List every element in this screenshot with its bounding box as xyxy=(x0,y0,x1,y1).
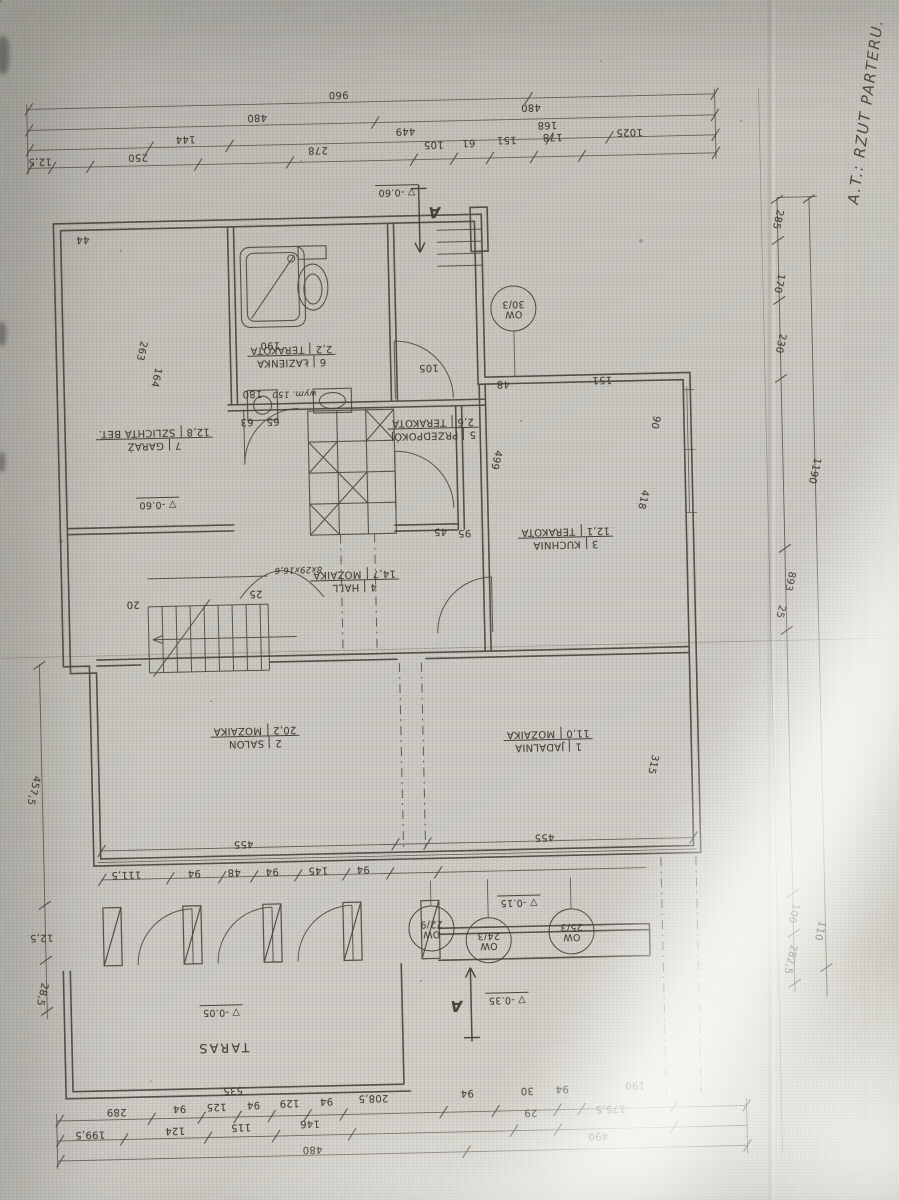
dim-label: 111,5 xyxy=(111,869,141,881)
dim-label: 20 xyxy=(126,599,140,610)
level-mark: ▽ -0.35 xyxy=(485,992,528,1006)
room-label: 6ŁAZIENKA2,2TERAKOTA xyxy=(247,342,336,369)
floorplan-photo: 96048048014444916812,5250278105611511781… xyxy=(0,0,899,1200)
window-mark: OW24/3 xyxy=(465,917,512,964)
dim-label: 94 xyxy=(247,1099,261,1110)
window-mark: OW30/3 xyxy=(490,285,537,332)
dim-label: 230 xyxy=(773,332,788,354)
dim-label: 45 xyxy=(434,526,448,537)
dim-label: 449 xyxy=(395,125,415,136)
dim-label: 105 xyxy=(424,139,444,150)
dim-label: 190 xyxy=(625,1079,645,1090)
dim-label: 100 xyxy=(786,902,801,924)
dim-label: 455 xyxy=(534,831,554,842)
dim-label: 61 xyxy=(462,137,476,148)
dim-label: 115 xyxy=(231,1121,251,1132)
plan-labels: 96048048014444916812,5250278105611511781… xyxy=(0,0,899,1200)
level-mark: ▽ -0.05 xyxy=(200,1004,243,1018)
dim-label: 175,5 xyxy=(595,1103,625,1115)
room-label: 5PRZEDPOKÓJ2,6TERAKOTA xyxy=(387,415,479,442)
dim-label: 164 xyxy=(148,367,163,389)
dim-label: 170 xyxy=(771,272,786,294)
room-label: 2SALON20,2MOZAIKA xyxy=(210,723,299,750)
dim-label: 144 xyxy=(175,133,195,144)
dim-label: 65 xyxy=(266,415,280,426)
dim-label: 168 xyxy=(537,119,557,130)
dim-label: 457,5 xyxy=(25,775,42,807)
dim-label: 893 xyxy=(782,570,797,592)
section-label: A xyxy=(428,203,440,221)
dim-label: 12,5 xyxy=(30,932,54,944)
dim-label: 285 xyxy=(770,208,785,230)
dim-label: 94 xyxy=(320,1095,334,1106)
dim-label: 151 xyxy=(496,134,516,145)
dim-label: 199,5 xyxy=(75,1128,105,1140)
dim-label: 63 xyxy=(240,416,254,427)
dim-label: 146 xyxy=(300,1118,320,1129)
dim-label: 95 xyxy=(458,527,472,538)
window-mark: OW25/3 xyxy=(548,908,595,955)
dim-label: 208,5 xyxy=(358,1092,388,1104)
room-label: 7GARAŻ12,8SZLICHTA BET. xyxy=(95,425,213,452)
paper-speckles xyxy=(0,0,2,2)
dim-label: 110 xyxy=(812,920,827,942)
window-mark: OW22/9 xyxy=(408,905,455,952)
dim-label: 263 xyxy=(134,340,149,362)
note-label: 8x29x16,6 xyxy=(274,564,322,575)
dim-label: 94 xyxy=(356,863,370,874)
room-label: 4HALL14,7MOZAIKA xyxy=(310,567,399,594)
dim-label: 48 xyxy=(496,378,510,389)
dim-label: 94 xyxy=(173,1103,187,1114)
dim-label: 94 xyxy=(187,867,201,878)
dim-label: 48 xyxy=(227,866,241,877)
dim-label: 499 xyxy=(488,449,503,471)
level-mark: ▽ -0.15 xyxy=(497,895,540,909)
dim-label: 180 xyxy=(242,388,262,399)
dim-label: 1025 xyxy=(616,126,643,138)
section-label: A xyxy=(450,997,462,1015)
plan-wrapper: 96048048014444916812,5250278105611511781… xyxy=(0,0,899,1200)
dim-label: 282,5 xyxy=(782,943,799,975)
dim-label: 125 xyxy=(206,1101,226,1112)
dim-label: 455 xyxy=(233,838,253,849)
dim-label: 151 xyxy=(592,374,612,385)
dim-label: 535 xyxy=(223,1084,243,1095)
dim-label: 480 xyxy=(247,112,267,123)
level-mark: ▽ -0.60 xyxy=(136,497,179,511)
dim-label: 44 xyxy=(76,234,90,245)
dim-label: 418 xyxy=(635,489,650,511)
dim-label: 178 xyxy=(542,131,562,142)
dim-label: 960 xyxy=(328,89,348,100)
dim-label: 124 xyxy=(165,1125,185,1136)
dim-label: 25 xyxy=(249,588,263,599)
dim-label: 94 xyxy=(555,1083,569,1094)
dim-label: 94 xyxy=(265,865,279,876)
dim-label: 129 xyxy=(279,1097,299,1108)
dim-label: 480 xyxy=(302,1144,322,1155)
dim-label: 90 xyxy=(648,415,662,430)
dim-label: 105 xyxy=(419,362,439,373)
dim-label: 278 xyxy=(308,144,328,155)
dim-label: 30 xyxy=(520,1085,534,1096)
room-label: 3KUCHNIA12,1TERAKOTA xyxy=(518,524,613,551)
dim-label: 289 xyxy=(106,1106,126,1117)
dim-label: 490 xyxy=(588,1130,608,1141)
dim-label: 250 xyxy=(128,151,148,162)
dim-label: 145 xyxy=(308,864,328,875)
dim-label: 29 xyxy=(524,1107,538,1118)
dim-label: 25 xyxy=(774,604,788,619)
level-mark: ▽ -0.60 xyxy=(375,184,418,198)
note-label: wym. 150 xyxy=(272,388,317,399)
dim-label: 1190 xyxy=(806,456,823,484)
dim-label: 94 xyxy=(460,1087,474,1098)
area-label: TARAS xyxy=(197,1040,250,1056)
room-label: 1JADALNIA11,0MOZAIKA xyxy=(503,726,592,753)
dim-label: 315 xyxy=(645,753,660,775)
dim-label: 480 xyxy=(521,101,541,112)
dim-label: 28,5 xyxy=(34,982,50,1007)
dim-label: 12,5 xyxy=(28,155,52,167)
